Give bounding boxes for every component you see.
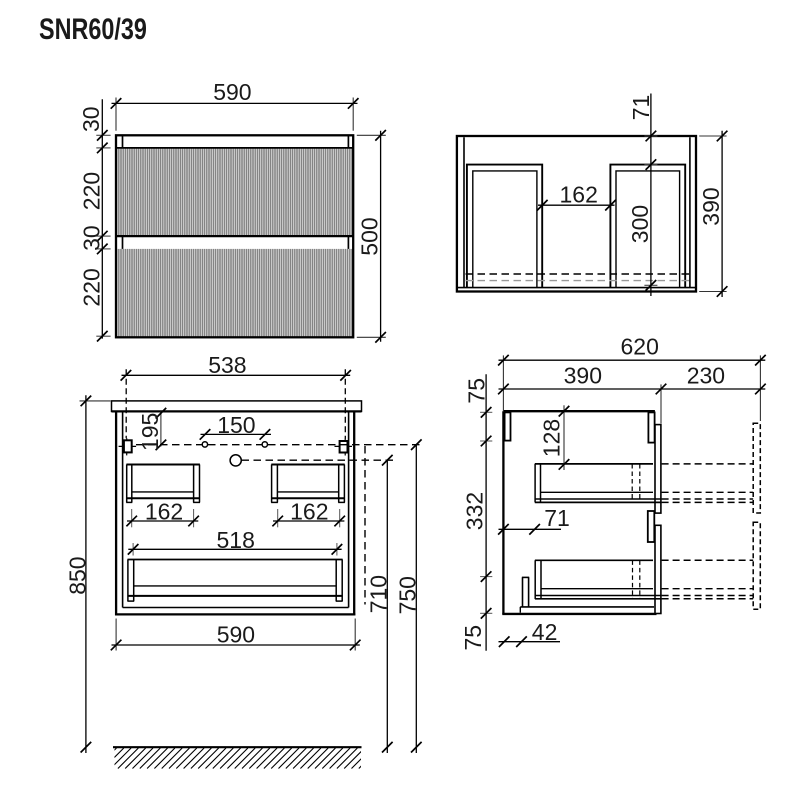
svg-text:850: 850 (64, 556, 90, 594)
svg-text:590: 590 (217, 621, 255, 647)
svg-text:150: 150 (217, 412, 255, 438)
svg-text:332: 332 (461, 492, 487, 530)
svg-text:75: 75 (464, 378, 490, 404)
svg-text:162: 162 (290, 498, 328, 524)
svg-text:128: 128 (539, 419, 565, 457)
svg-text:30: 30 (79, 225, 105, 251)
svg-text:710: 710 (366, 575, 392, 613)
svg-text:75: 75 (460, 625, 486, 651)
svg-text:71: 71 (628, 95, 654, 121)
svg-text:390: 390 (564, 363, 602, 389)
svg-text:750: 750 (395, 576, 421, 614)
svg-text:620: 620 (621, 334, 659, 360)
svg-text:42: 42 (532, 619, 558, 645)
svg-text:30: 30 (78, 106, 104, 132)
svg-text:162: 162 (145, 498, 183, 524)
svg-text:162: 162 (560, 181, 598, 207)
svg-text:195: 195 (137, 413, 163, 451)
svg-text:220: 220 (79, 172, 105, 210)
svg-text:538: 538 (208, 352, 246, 378)
svg-text:590: 590 (213, 79, 251, 105)
svg-text:SNR60/39: SNR60/39 (39, 12, 147, 45)
svg-text:300: 300 (627, 205, 653, 243)
svg-text:518: 518 (217, 527, 255, 553)
svg-text:230: 230 (687, 363, 725, 389)
svg-text:220: 220 (79, 268, 105, 306)
svg-text:500: 500 (356, 217, 382, 255)
svg-text:71: 71 (544, 505, 570, 531)
svg-text:390: 390 (698, 187, 724, 225)
